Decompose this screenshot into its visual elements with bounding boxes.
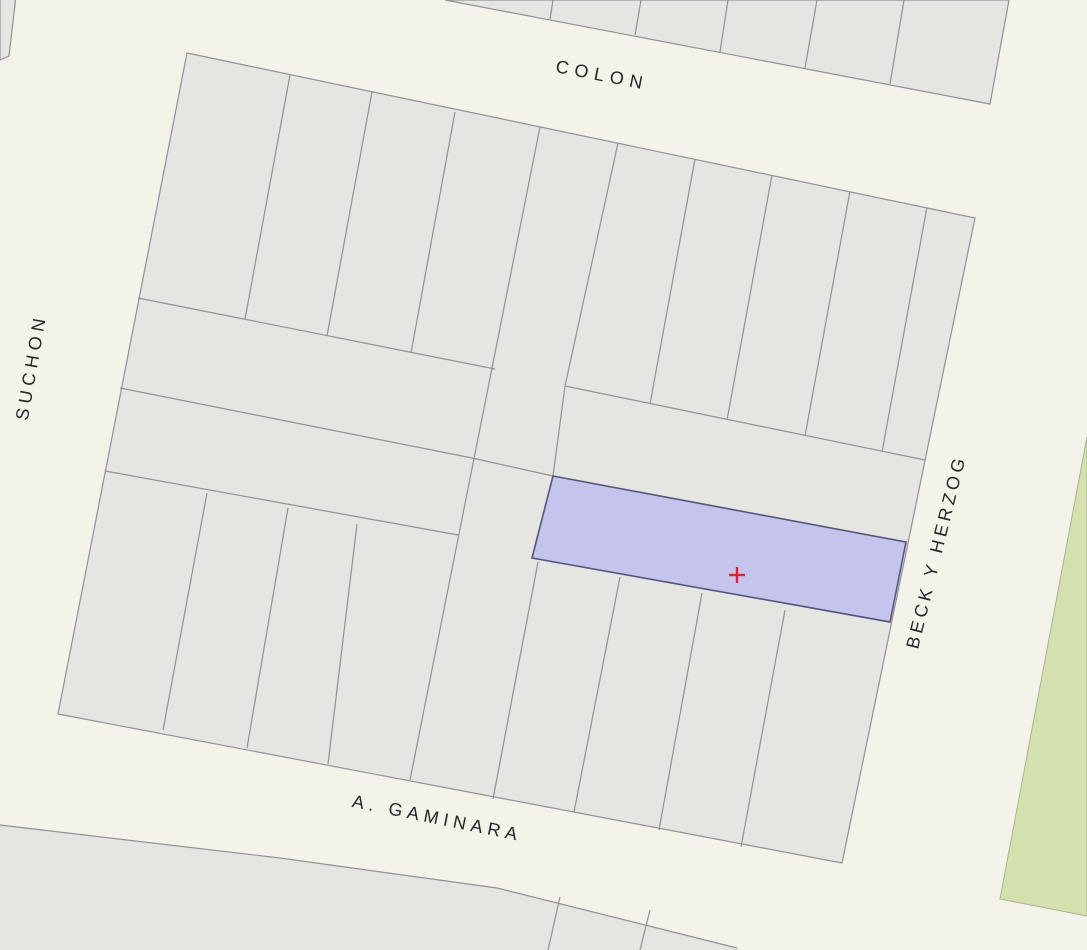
cadastral-map-canvas[interactable]: COLONSUCHONBECK Y HERZOGA. GAMINARA xyxy=(0,0,1087,950)
map-viewport: COLONSUCHONBECK Y HERZOGA. GAMINARA xyxy=(0,0,1087,950)
